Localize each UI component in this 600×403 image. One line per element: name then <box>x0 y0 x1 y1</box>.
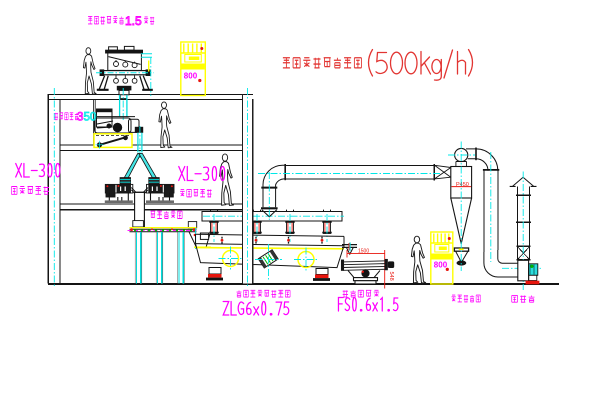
svg-text:P450: P450 <box>456 182 469 188</box>
svg-text:1500: 1500 <box>358 249 369 255</box>
svg-text:548: 548 <box>388 272 394 281</box>
svg-text:50: 50 <box>84 112 97 124</box>
svg-text:800: 800 <box>184 72 198 81</box>
svg-text:3: 3 <box>77 112 83 124</box>
svg-text:1.5: 1.5 <box>125 14 142 28</box>
svg-text:800: 800 <box>434 261 448 270</box>
